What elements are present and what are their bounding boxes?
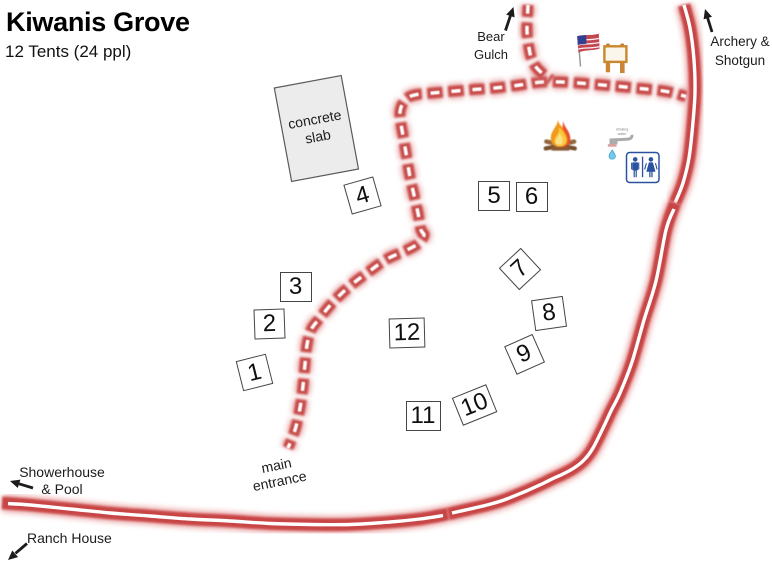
svg-text:water: water [618,132,628,136]
